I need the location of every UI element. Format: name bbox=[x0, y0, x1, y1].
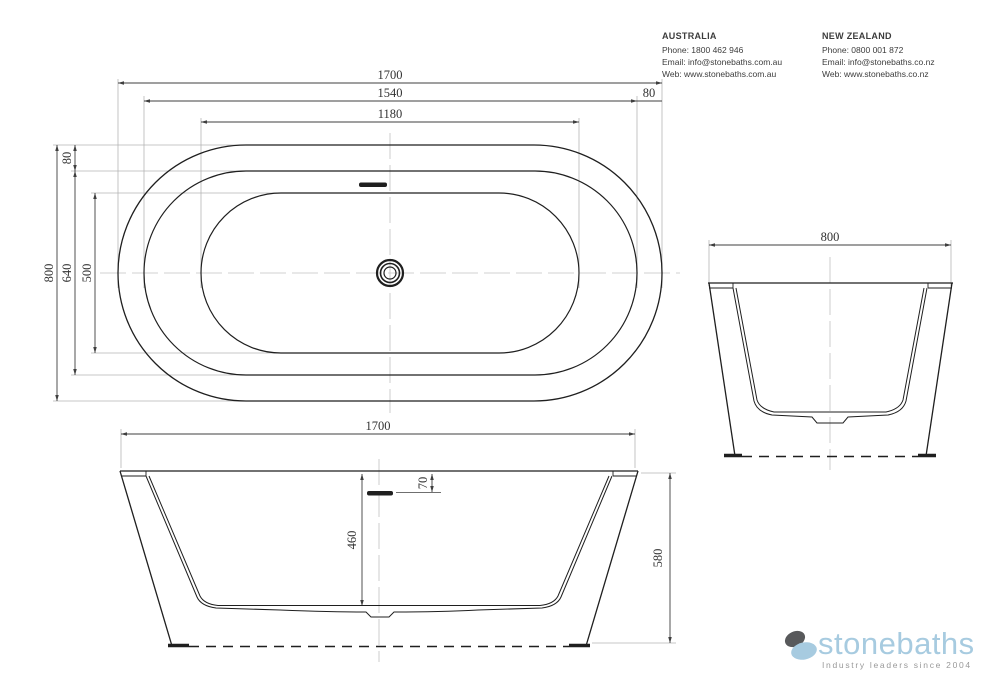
dim-front-depth-internal: 460 bbox=[345, 531, 359, 550]
contact-australia-title: AUSTRALIA bbox=[662, 30, 782, 42]
logo-brand-text: stonebaths bbox=[818, 628, 975, 659]
contact-new-zealand-phone: Phone: 0800 001 872 bbox=[822, 44, 935, 56]
dim-plan-length-basin: 1180 bbox=[378, 107, 403, 121]
dim-front-overflow-drop: 70 bbox=[416, 477, 430, 490]
contact-australia-phone: Phone: 1800 462 946 bbox=[662, 44, 782, 56]
dim-front-length-overall: 1700 bbox=[366, 419, 391, 433]
front-extension-lines bbox=[121, 429, 676, 643]
plan-centerlines bbox=[100, 133, 680, 413]
logo-pebbles-icon bbox=[780, 624, 820, 674]
contact-australia-web: Web: www.stonebaths.com.au bbox=[662, 68, 782, 80]
front-view: 1700 70 460 580 bbox=[120, 419, 676, 662]
dim-plan-width-overall: 800 bbox=[42, 264, 56, 283]
end-view: 800 bbox=[708, 230, 953, 470]
overflow-plan bbox=[359, 183, 387, 188]
dim-end-width-overall: 800 bbox=[821, 230, 840, 244]
plan-view: 1700 1540 1180 80 800 640 500 80 bbox=[42, 68, 680, 413]
dim-plan-rim-width-top: 80 bbox=[60, 152, 74, 165]
logo-tagline: Industry leaders since 2004 bbox=[822, 660, 972, 670]
stonebaths-logo: stonebaths Industry leaders since 2004 bbox=[780, 616, 995, 678]
end-tub-outline bbox=[708, 283, 953, 456]
overflow-front bbox=[367, 491, 393, 496]
dim-plan-width-basin: 500 bbox=[80, 264, 94, 283]
dim-front-height-overall: 580 bbox=[651, 549, 665, 568]
bathtub-technical-drawing: 1700 1540 1180 80 800 640 500 80 800 bbox=[0, 0, 1000, 700]
contact-new-zealand-email: Email: info@stonebaths.co.nz bbox=[822, 56, 935, 68]
contact-new-zealand: NEW ZEALAND Phone: 0800 001 872 Email: i… bbox=[822, 30, 935, 80]
contact-new-zealand-title: NEW ZEALAND bbox=[822, 30, 935, 42]
dim-plan-length-rim-inner: 1540 bbox=[378, 86, 403, 100]
contact-new-zealand-web: Web: www.stonebaths.co.nz bbox=[822, 68, 935, 80]
dim-plan-width-rim-inner: 640 bbox=[60, 264, 74, 283]
dim-plan-length-overall: 1700 bbox=[378, 68, 403, 82]
contact-australia: AUSTRALIA Phone: 1800 462 946 Email: inf… bbox=[662, 30, 782, 80]
drawing-sheet: AUSTRALIA Phone: 1800 462 946 Email: inf… bbox=[0, 0, 1000, 700]
dim-plan-rim-width-right: 80 bbox=[643, 86, 656, 100]
contact-australia-email: Email: info@stonebaths.com.au bbox=[662, 56, 782, 68]
